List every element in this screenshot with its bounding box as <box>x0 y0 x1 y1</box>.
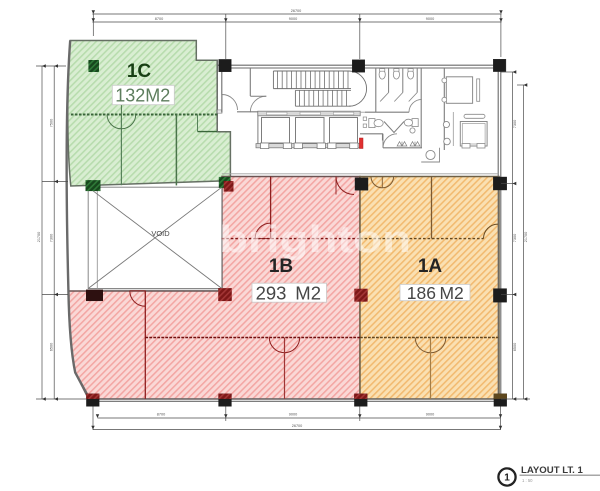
svg-text:9000: 9000 <box>289 413 297 417</box>
svg-text:1A: 1A <box>418 256 443 277</box>
svg-text:293 M2: 293 M2 <box>256 282 321 303</box>
svg-text:9000: 9000 <box>289 17 297 21</box>
svg-text:7500: 7500 <box>49 119 53 127</box>
svg-text:brighton: brighton <box>219 219 411 261</box>
svg-text:9000: 9000 <box>426 413 434 417</box>
svg-text:1 : 50: 1 : 50 <box>522 478 533 483</box>
svg-text:26700: 26700 <box>291 9 302 13</box>
svg-text:26700: 26700 <box>292 424 303 428</box>
svg-text:21700: 21700 <box>524 232 528 243</box>
svg-text:8700: 8700 <box>157 413 165 417</box>
svg-text:1C: 1C <box>127 61 152 82</box>
svg-text:6500: 6500 <box>513 343 517 351</box>
svg-text:LAYOUT LT. 1: LAYOUT LT. 1 <box>521 465 583 476</box>
svg-text:7300: 7300 <box>513 120 517 128</box>
svg-text:7300: 7300 <box>513 234 517 242</box>
svg-text:8700: 8700 <box>155 17 163 21</box>
svg-text:1B: 1B <box>269 256 293 277</box>
svg-text:6500: 6500 <box>49 343 53 351</box>
svg-text:9000: 9000 <box>426 17 434 21</box>
svg-text:186 M2: 186 M2 <box>407 283 464 303</box>
svg-text:7300: 7300 <box>49 234 53 242</box>
svg-text:132M2: 132M2 <box>115 86 170 106</box>
svg-text:21700: 21700 <box>37 232 41 243</box>
svg-text:VOID: VOID <box>151 229 170 238</box>
svg-text:1: 1 <box>504 473 510 484</box>
